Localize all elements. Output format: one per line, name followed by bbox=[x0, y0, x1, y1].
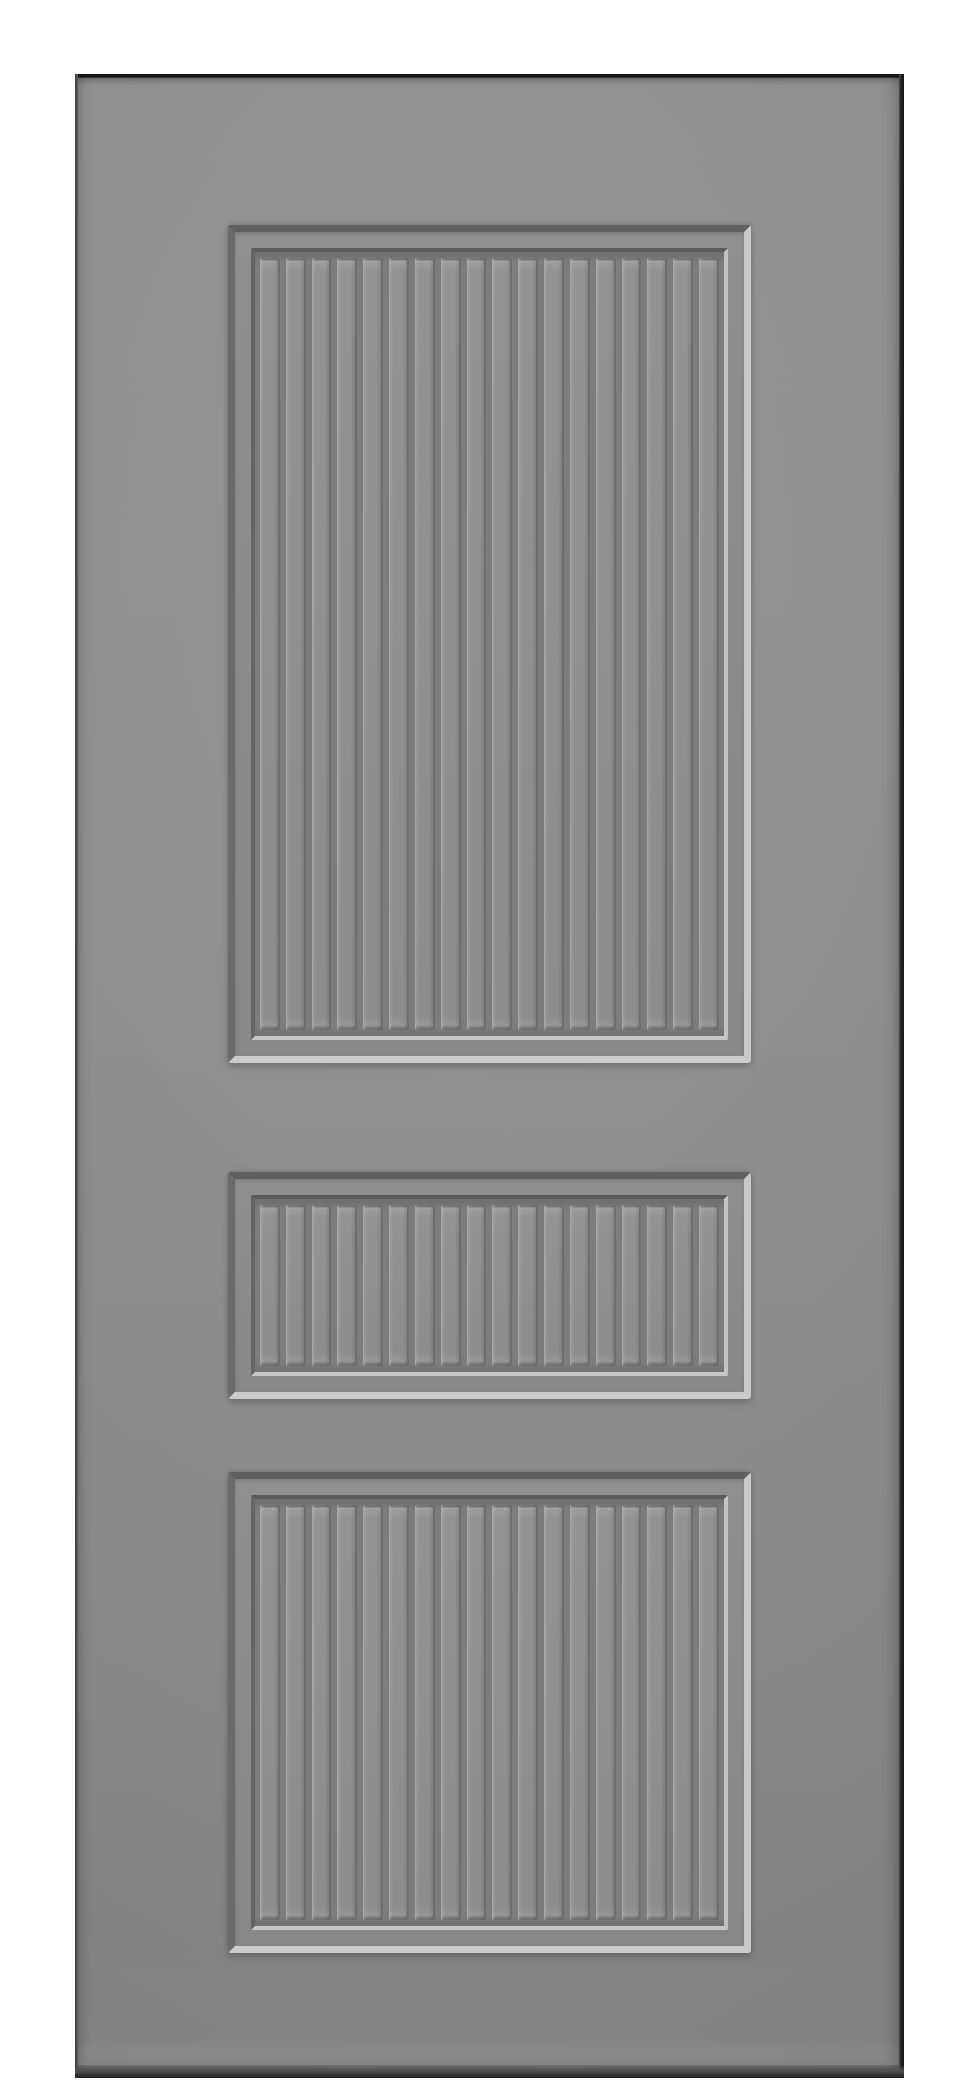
panel-frame bbox=[235, 232, 744, 1056]
beadboard-plank bbox=[441, 1205, 461, 1366]
product-photo-page: { "scene": { "description": "Product pho… bbox=[0, 0, 980, 2100]
beadboard-plank bbox=[363, 1505, 383, 1920]
beadboard-plank bbox=[492, 1505, 512, 1920]
beadboard-plank bbox=[622, 258, 642, 1030]
beadboard-plank bbox=[492, 258, 512, 1030]
beadboard-plank bbox=[570, 1505, 590, 1920]
beadboard-plank bbox=[389, 1205, 409, 1366]
panel-inner-lip bbox=[251, 248, 728, 1040]
beadboard-plank bbox=[337, 1205, 357, 1366]
panel-inner-lip bbox=[251, 1195, 728, 1376]
beadboard-plank bbox=[596, 1205, 616, 1366]
beadboard-plank bbox=[622, 1205, 642, 1366]
beadboard-plank bbox=[286, 258, 306, 1030]
beadboard-plank bbox=[415, 258, 435, 1030]
beadboard-plank bbox=[260, 1205, 280, 1366]
beadboard-plank bbox=[518, 1205, 538, 1366]
beadboard-plank bbox=[699, 258, 719, 1030]
beadboard-plank bbox=[312, 1205, 332, 1366]
beadboard-plank bbox=[286, 1505, 306, 1920]
beadboard-plank bbox=[260, 258, 280, 1030]
beadboard-plank bbox=[312, 258, 332, 1030]
beadboard-plank bbox=[518, 258, 538, 1030]
beadboard-plank bbox=[363, 1205, 383, 1366]
beadboard-plank bbox=[673, 1505, 693, 1920]
beadboard-plank bbox=[363, 258, 383, 1030]
beadboard-plank bbox=[337, 1505, 357, 1920]
door-panel-middle bbox=[228, 1172, 751, 1399]
beadboard-plank bbox=[441, 258, 461, 1030]
beadboard-plank bbox=[415, 1505, 435, 1920]
beadboard-plank bbox=[647, 1205, 667, 1366]
beadboard-plank bbox=[518, 1505, 538, 1920]
panel-frame bbox=[235, 1179, 744, 1392]
beadboard-plank bbox=[492, 1205, 512, 1366]
door-bottom-sheen bbox=[78, 2039, 899, 2065]
beadboard-field bbox=[255, 252, 724, 1036]
beadboard-plank bbox=[647, 258, 667, 1030]
door-right-edge bbox=[899, 74, 904, 2078]
beadboard-plank bbox=[673, 258, 693, 1030]
beadboard-plank bbox=[544, 258, 564, 1030]
beadboard-plank bbox=[312, 1505, 332, 1920]
door-top-edge bbox=[75, 74, 904, 78]
beadboard-plank bbox=[544, 1505, 564, 1920]
beadboard-plank bbox=[622, 1505, 642, 1920]
beadboard-plank bbox=[467, 1505, 487, 1920]
beadboard-plank bbox=[544, 1205, 564, 1366]
door-bottom-edge bbox=[75, 2065, 904, 2078]
beadboard-plank bbox=[647, 1505, 667, 1920]
beadboard-plank bbox=[389, 258, 409, 1030]
beadboard-plank bbox=[673, 1205, 693, 1366]
panel-inner-lip bbox=[251, 1495, 728, 1930]
beadboard-plank bbox=[337, 258, 357, 1030]
beadboard-plank bbox=[699, 1505, 719, 1920]
beadboard-plank bbox=[286, 1205, 306, 1366]
beadboard-plank bbox=[596, 1505, 616, 1920]
beadboard-plank bbox=[467, 1205, 487, 1366]
beadboard-plank bbox=[415, 1205, 435, 1366]
door-panel-bottom bbox=[228, 1472, 751, 1953]
beadboard-plank bbox=[570, 258, 590, 1030]
door-leaf bbox=[75, 74, 904, 2078]
door-left-edge bbox=[75, 74, 78, 2078]
beadboard-plank bbox=[699, 1205, 719, 1366]
beadboard-plank bbox=[441, 1505, 461, 1920]
beadboard-plank bbox=[467, 258, 487, 1030]
beadboard-field bbox=[255, 1199, 724, 1372]
door-panel-top bbox=[228, 225, 751, 1063]
beadboard-plank bbox=[570, 1205, 590, 1366]
panel-frame bbox=[235, 1479, 744, 1946]
beadboard-field bbox=[255, 1499, 724, 1926]
beadboard-plank bbox=[596, 258, 616, 1030]
beadboard-plank bbox=[260, 1505, 280, 1920]
beadboard-plank bbox=[389, 1505, 409, 1920]
